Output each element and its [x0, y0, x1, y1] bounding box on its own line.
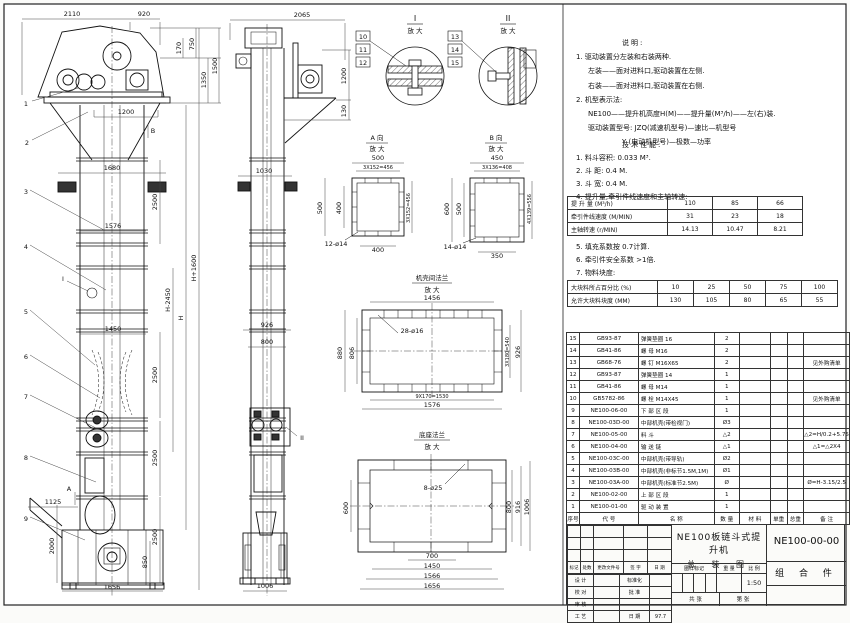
- dim-label: 1500: [211, 58, 219, 75]
- dim-label: 170: [175, 42, 183, 54]
- dim-label: 800: [261, 338, 273, 346]
- dim-label: 450: [491, 154, 503, 162]
- dim-label: 2500: [151, 450, 159, 467]
- cell: 25: [694, 281, 730, 294]
- bom-no: 4: [567, 465, 580, 477]
- scale-label: 比 例: [741, 563, 766, 573]
- bom-no: 13: [567, 357, 580, 369]
- engineering-drawing-sheet: { "notes": { "heading": "说明:", "lines": …: [0, 0, 850, 609]
- bom-name: 输 送 链: [638, 441, 714, 453]
- bom-total-weight: [787, 453, 804, 465]
- dim-label: 2065: [294, 11, 311, 19]
- bom-no: 14: [567, 345, 580, 357]
- bom-qty: 2: [714, 345, 739, 357]
- dim-label: 1450: [105, 325, 122, 333]
- spec-item: 5. 填充系数按 0.7计算.: [576, 241, 844, 254]
- cell: 65: [766, 294, 802, 307]
- cell: 105: [694, 294, 730, 307]
- bom-row: 2NE100-02-00上 部 区 段1: [567, 489, 850, 501]
- bom-qty: 1: [714, 381, 739, 393]
- bom-total-weight: [787, 345, 804, 357]
- bom-header: 数 量: [714, 513, 739, 525]
- detail-ii-sub: 放 大: [500, 26, 516, 35]
- specs-heading: 技术性能:: [622, 139, 844, 152]
- mark-label: 图样标记: [671, 563, 716, 573]
- dim-label: 4X139=556: [527, 194, 533, 224]
- dim-label: 1006: [523, 499, 531, 516]
- bom-total-weight: [787, 333, 804, 345]
- dim-label: 600: [342, 502, 350, 514]
- bom-header: 材 料: [739, 513, 770, 525]
- revision-header-row: 标记 处数 更改文件号 签 字 日 期: [568, 562, 672, 574]
- weight-label: 重 量: [716, 563, 741, 573]
- bom-name: 中部机壳(带导轨): [638, 453, 714, 465]
- bom-total-weight: [787, 465, 804, 477]
- bom-name: 中部机壳(带检视门): [638, 417, 714, 429]
- dim-label: 1680: [104, 164, 121, 172]
- bom-code: NE100-03A-00: [579, 477, 638, 489]
- role-label: 标准化: [620, 575, 650, 587]
- cell: 8.21: [758, 223, 803, 236]
- drawing-name: NE100板链斗式提升机: [672, 530, 766, 556]
- dim-label: 500: [455, 203, 463, 215]
- spec-item: 3. 斗 宽: 0.4 M.: [576, 178, 844, 191]
- bom-row: 6NE100-04-00输 送 链△1△1=△2X4: [567, 441, 850, 453]
- dim-label: H-2450: [164, 288, 172, 312]
- spec-item: 7. 物料块度:: [576, 267, 844, 280]
- detail-i-title: I: [414, 14, 416, 23]
- cell: 80: [730, 294, 766, 307]
- bom-material: [739, 501, 770, 513]
- table-row: 牵引件线速度 (M/MIN) 31 23 18: [568, 210, 803, 223]
- bom-no: 8: [567, 417, 580, 429]
- bom-unit-weight: [770, 345, 787, 357]
- dim-label: 9X170=1530: [415, 394, 448, 400]
- bom-header: 单重: [770, 513, 787, 525]
- dim-label: 2110: [64, 10, 81, 18]
- dim-label: 28-ø16: [401, 327, 424, 335]
- bom-row: 4NE100-03B-00中部机壳(非标节1.5M,1M)Ø1: [567, 465, 850, 477]
- detail-flange-sub: 放 大: [424, 285, 440, 294]
- specs-section-mid: 5. 填充系数按 0.7计算. 6. 牵引件安全系数 >1倍. 7. 物料块度:: [576, 241, 844, 280]
- drawing-number: NE100-00-00: [767, 525, 846, 559]
- bom-row: 15GB93-87弹簧垫圈 162: [567, 333, 850, 345]
- bom-unit-weight: [770, 453, 787, 465]
- bom-remark: △1=△2X4: [804, 441, 850, 453]
- bom-total-weight: [787, 441, 804, 453]
- role-row: 设 计标准化: [568, 575, 672, 587]
- dim-label: 14-ø14: [444, 243, 467, 251]
- dim-label: 1450: [424, 562, 441, 570]
- cell: 18: [758, 210, 803, 223]
- dim-label: 8-ø25: [424, 484, 443, 492]
- note-line: NE100——提升机高度H(M)——提升量(M³/h)——左(右)装.: [588, 107, 844, 121]
- dim-label: 1656: [424, 582, 441, 590]
- callout-label: 13: [451, 33, 459, 41]
- callout-label: 2: [25, 139, 29, 147]
- bom-unit-weight: [770, 393, 787, 405]
- cell: 23: [713, 210, 758, 223]
- callout-label: 12: [359, 59, 367, 67]
- dim-label: 1030: [256, 167, 273, 175]
- rev-header: 日 期: [648, 562, 672, 574]
- bom-total-weight: [787, 393, 804, 405]
- bom-remark: [804, 501, 850, 513]
- bom-name: 中部机壳(非标节1.5M,1M): [638, 465, 714, 477]
- bom-unit-weight: [770, 417, 787, 429]
- bom-remark: [804, 345, 850, 357]
- bom-row: 13GB68-76螺 钉 M16X652见外购清单: [567, 357, 850, 369]
- bom-row: 1NE100-01-00驱 动 装 置1: [567, 501, 850, 513]
- detail-b-title: B 向: [489, 133, 502, 142]
- bom-total-weight: [787, 477, 804, 489]
- bom-material: [739, 417, 770, 429]
- bom-name: 弹簧垫圈 14: [638, 369, 714, 381]
- bom-remark: Ø=H-3.15/2.5: [804, 477, 850, 489]
- callout-label: 9: [24, 515, 28, 523]
- callout-label: 5: [24, 308, 28, 316]
- cell: 66: [758, 197, 803, 210]
- note-line: 驱动装置型号: JZQ(减速机型号)—速比—机型号: [588, 121, 844, 135]
- bom-qty: 2: [714, 357, 739, 369]
- scale-value: 1:50: [741, 573, 766, 592]
- bom-name: 上 部 区 段: [638, 489, 714, 501]
- bom-unit-weight: [770, 501, 787, 513]
- dim-label: 400: [335, 202, 343, 214]
- bom-remark: [804, 489, 850, 501]
- bom-total-weight: [787, 357, 804, 369]
- detail-b-sub: 放 大: [488, 144, 504, 153]
- bom-material: [739, 489, 770, 501]
- part-type: 组 合 件: [767, 562, 846, 586]
- dim-label: 1006: [257, 582, 274, 590]
- dim-label: 3X152=456: [363, 165, 393, 171]
- bom-material: [739, 369, 770, 381]
- row-label: 提 升 量 (M³/h): [568, 197, 668, 210]
- cell: 100: [802, 281, 838, 294]
- bom-name: 螺 母 M14: [638, 381, 714, 393]
- bom-code: GB93-87: [579, 369, 638, 381]
- rev-header: 标记: [568, 562, 581, 574]
- bom-name: 弹簧垫圈 16: [638, 333, 714, 345]
- bom-material: [739, 405, 770, 417]
- detail-flange-title: 机壳间法兰: [416, 273, 449, 282]
- bom-remark: △2=H/0.2+5.75: [804, 429, 850, 441]
- bom-no: 15: [567, 333, 580, 345]
- detail-a-title: A 向: [370, 133, 383, 142]
- bom-remark: [804, 369, 850, 381]
- bom-header-row: 序号代 号名 称数 量材 料单重总重备 注: [567, 513, 850, 525]
- bom-code: NE100-06-00: [579, 405, 638, 417]
- callout-label: 8: [24, 454, 28, 462]
- detail-ii-title: II: [506, 14, 511, 23]
- cell: 31: [668, 210, 713, 223]
- detail-a-sub: 放 大: [369, 144, 385, 153]
- dim-label: 1125: [45, 498, 62, 506]
- bom-row: 7NE100-05-00料 斗△2△2=H/0.2+5.75: [567, 429, 850, 441]
- bom-qty: 2: [714, 333, 739, 345]
- rev-header: 签 字: [624, 562, 648, 574]
- bom-code: GB5782-86: [579, 393, 638, 405]
- bom-row: 9NE100-06-00下 部 区 段1: [567, 405, 850, 417]
- spec-item: 1. 料斗容积: 0.033 M³.: [576, 152, 844, 165]
- bom-code: NE100-03C-00: [579, 453, 638, 465]
- note-line: 2. 机型表示法:: [576, 93, 844, 107]
- callout-label: 6: [24, 353, 28, 361]
- dim-label: 880: [336, 347, 344, 359]
- bom-material: [739, 393, 770, 405]
- dim-label: 1456: [424, 294, 441, 302]
- bom-qty: 1: [714, 489, 739, 501]
- row-label: 大块料所占百分比 (%): [568, 281, 658, 294]
- cell: 10.47: [713, 223, 758, 236]
- bom-name: 螺 栓 M14X45: [638, 393, 714, 405]
- note-line: 右装——面对进料口,驱动装置在右侧.: [588, 79, 844, 93]
- bom-unit-weight: [770, 441, 787, 453]
- bom-qty: 1: [714, 393, 739, 405]
- bom-total-weight: [787, 429, 804, 441]
- bom-name: 料 斗: [638, 429, 714, 441]
- bom-qty: 1: [714, 369, 739, 381]
- bom-remark: 见外购清单: [804, 357, 850, 369]
- role-label: 设 计: [568, 575, 594, 587]
- bom-row: 5NE100-03C-00中部机壳(带导轨)Ø2: [567, 453, 850, 465]
- bom-remark: [804, 381, 850, 393]
- bom-unit-weight: [770, 429, 787, 441]
- bom-table: 15GB93-87弹簧垫圈 162 14GB41-86螺 母 M162 13GB…: [566, 332, 850, 525]
- bom-material: [739, 429, 770, 441]
- notes-heading: 说明:: [622, 36, 844, 50]
- role-row: 校 对批 准: [568, 587, 672, 599]
- bom-material: [739, 357, 770, 369]
- bom-material: [739, 465, 770, 477]
- drawing-number-box: NE100-00-00: [766, 525, 846, 561]
- part-type-box: 组 合 件: [766, 561, 846, 585]
- bom-total-weight: [787, 405, 804, 417]
- bom-no: 5: [567, 453, 580, 465]
- bom-no: 10: [567, 393, 580, 405]
- detail-base-sub: 放 大: [424, 442, 440, 451]
- note-line: 左装——面对进料口,驱动装置在左侧.: [588, 64, 844, 78]
- bom-remark: [804, 465, 850, 477]
- dim-label: 2500: [151, 367, 159, 384]
- dim-label: 926: [514, 346, 522, 358]
- title-date: 97.7: [650, 611, 672, 623]
- cell: 130: [658, 294, 694, 307]
- callout-label: 1: [24, 100, 28, 108]
- dim-label: 1350: [200, 72, 208, 89]
- role-label: 日 期: [620, 611, 650, 623]
- detail-i-sub: 放 大: [407, 26, 423, 35]
- note-line: 1. 驱动装置分左装和右装两种.: [576, 50, 844, 64]
- specs-section: 技术性能: 1. 料斗容积: 0.033 M³. 2. 斗 距: 0.4 M. …: [576, 139, 844, 204]
- bom-row: 11GB41-86螺 母 M141: [567, 381, 850, 393]
- cell: 55: [802, 294, 838, 307]
- bom-no: 9: [567, 405, 580, 417]
- dim-label: 600: [443, 203, 451, 215]
- bom-code: NE100-05-00: [579, 429, 638, 441]
- bom-material: [739, 453, 770, 465]
- lump-size-table: 大块料所占百分比 (%) 10 25 50 75 100 允许大块料块度 (MM…: [567, 280, 838, 307]
- bom-no: 6: [567, 441, 580, 453]
- bom-remark: [804, 333, 850, 345]
- drawing-name-box: NE100板链斗式提升机 总 装 图: [671, 525, 766, 563]
- dim-label: 1656: [104, 583, 121, 591]
- bom-remark: [804, 453, 850, 465]
- bom-total-weight: [787, 501, 804, 513]
- bom-code: GB41-86: [579, 381, 638, 393]
- view-marker: A: [67, 485, 72, 493]
- bom-row: 12GB93-87弹簧垫圈 141: [567, 369, 850, 381]
- bom-unit-weight: [770, 477, 787, 489]
- bom-qty: Ø2: [714, 453, 739, 465]
- sheet-number: 第 张: [719, 592, 766, 606]
- role-label: 校 对: [568, 587, 594, 599]
- callout-label: 7: [24, 393, 28, 401]
- bom-qty: Ø: [714, 477, 739, 489]
- bom-no: 3: [567, 477, 580, 489]
- row-label: 主轴转速 (r/MIN): [568, 223, 668, 236]
- bom-material: [739, 333, 770, 345]
- dim-label: 2000: [48, 538, 56, 555]
- revision-grid: 标记 处数 更改文件号 签 字 日 期 设 计标准化 校 对批 准 审 核 工 …: [567, 525, 671, 606]
- bom-header: 代 号: [579, 513, 638, 525]
- dim-label: 806: [348, 347, 356, 359]
- callout-label: 11: [359, 46, 367, 54]
- bom-no: 12: [567, 369, 580, 381]
- bom-unit-weight: [770, 405, 787, 417]
- bom-qty: △2: [714, 429, 739, 441]
- table-row: 提 升 量 (M³/h) 110 85 66: [568, 197, 803, 210]
- dim-label: 800: [505, 501, 513, 513]
- dim-label: 920: [138, 10, 150, 18]
- bom-name: 下 部 区 段: [638, 405, 714, 417]
- bom-header: 名 称: [638, 513, 714, 525]
- dim-label: 400: [372, 246, 384, 254]
- bom-header: 序号: [567, 513, 580, 525]
- bom-no: 2: [567, 489, 580, 501]
- table-row: 主轴转速 (r/MIN) 14.13 10.47 8.21: [568, 223, 803, 236]
- bom-header: 备 注: [804, 513, 850, 525]
- bom-code: NE100-02-00: [579, 489, 638, 501]
- bom-unit-weight: [770, 381, 787, 393]
- dim-label: 350: [491, 252, 503, 260]
- spec-item: 2. 斗 距: 0.4 M.: [576, 165, 844, 178]
- bom-remark: [804, 405, 850, 417]
- dim-label: 1566: [424, 572, 441, 580]
- bom-material: [739, 345, 770, 357]
- dim-label: 500: [316, 202, 324, 214]
- bom-total-weight: [787, 417, 804, 429]
- callout-label: 15: [451, 59, 459, 67]
- rev-header: 处数: [581, 562, 594, 574]
- dim-label: 2500: [151, 529, 159, 546]
- dim-label: 1200: [340, 68, 348, 85]
- bom-remark: 见外购清单: [804, 393, 850, 405]
- dim-label: 926: [261, 321, 273, 329]
- bom-row: 3NE100-03A-00中部机壳(标准节2.5M)ØØ=H-3.15/2.5: [567, 477, 850, 489]
- row-label: 牵引件线速度 (M/MIN): [568, 210, 668, 223]
- dim-label: 1576: [424, 401, 441, 409]
- bom-qty: Ø3: [714, 417, 739, 429]
- dim-label: 130: [340, 105, 348, 117]
- cell: 10: [658, 281, 694, 294]
- bom-name: 驱 动 装 置: [638, 501, 714, 513]
- bom-material: [739, 441, 770, 453]
- dim-label: 3X152=456: [406, 193, 412, 223]
- bom-material: [739, 477, 770, 489]
- sheet-count: 共 张: [671, 592, 719, 606]
- bom-code: NE100-04-00: [579, 441, 638, 453]
- dim-label: 12-ø14: [325, 240, 348, 248]
- role-label: 批 准: [620, 587, 650, 599]
- role-row: 工 艺日 期97.7: [568, 611, 672, 623]
- bom-name: 螺 钉 M16X65: [638, 357, 714, 369]
- bom-no: 1: [567, 501, 580, 513]
- view-marker: B: [151, 127, 155, 135]
- bom-code: GB93-87: [579, 333, 638, 345]
- table-row: 大块料所占百分比 (%) 10 25 50 75 100: [568, 281, 838, 294]
- dim-label: 916: [514, 501, 522, 513]
- dim-label: 700: [426, 552, 438, 560]
- notes-section: 说明: 1. 驱动装置分左装和右装两种. 左装——面对进料口,驱动装置在左侧. …: [576, 36, 844, 150]
- cell: 14.13: [668, 223, 713, 236]
- bom-header: 总重: [787, 513, 804, 525]
- bom-material: [739, 381, 770, 393]
- spec-item: 6. 牵引件安全系数 >1倍.: [576, 254, 844, 267]
- bom-unit-weight: [770, 489, 787, 501]
- dim-label: H: [177, 315, 185, 320]
- dim-label: 2500: [151, 194, 159, 211]
- bom-qty: Ø1: [714, 465, 739, 477]
- bom-name: 螺 母 M16: [638, 345, 714, 357]
- bom-code: GB41-86: [579, 345, 638, 357]
- bom-unit-weight: [770, 333, 787, 345]
- dim-label: 3X136=408: [482, 165, 512, 171]
- bom-row: 8NE100-03D-00中部机壳(带检视门)Ø3: [567, 417, 850, 429]
- capacity-table: 提 升 量 (M³/h) 110 85 66 牵引件线速度 (M/MIN) 31…: [567, 196, 803, 236]
- bom-code: NE100-01-00: [579, 501, 638, 513]
- callout-label: 10: [359, 33, 367, 41]
- rev-header: 更改文件号: [594, 562, 624, 574]
- bom-no: 7: [567, 429, 580, 441]
- bom-total-weight: [787, 369, 804, 381]
- bom-unit-weight: [770, 369, 787, 381]
- bom-qty: 1: [714, 405, 739, 417]
- table-row: 允许大块料块度 (MM) 130 105 80 65 55: [568, 294, 838, 307]
- callout-label: 3: [24, 188, 28, 196]
- dim-label: 1200: [118, 108, 135, 116]
- bom-code: GB68-76: [579, 357, 638, 369]
- bom-row: 10GB5782-86螺 栓 M14X451见外购清单: [567, 393, 850, 405]
- dim-label: 3X180=540: [505, 337, 511, 367]
- dim-label: 850: [141, 556, 149, 568]
- bom-code: NE100-03B-00: [579, 465, 638, 477]
- cell: 110: [668, 197, 713, 210]
- cell: 85: [713, 197, 758, 210]
- bom-total-weight: [787, 489, 804, 501]
- cell: 75: [766, 281, 802, 294]
- bom-qty: △1: [714, 441, 739, 453]
- dim-label: 500: [372, 154, 384, 162]
- title-block: 标记 处数 更改文件号 签 字 日 期 设 计标准化 校 对批 准 审 核 工 …: [566, 524, 845, 605]
- view-marker: I: [62, 275, 64, 283]
- row-label: 允许大块料块度 (MM): [568, 294, 658, 307]
- bom-remark: [804, 417, 850, 429]
- bom-qty: 1: [714, 501, 739, 513]
- bom-unit-weight: [770, 465, 787, 477]
- bom-unit-weight: [770, 357, 787, 369]
